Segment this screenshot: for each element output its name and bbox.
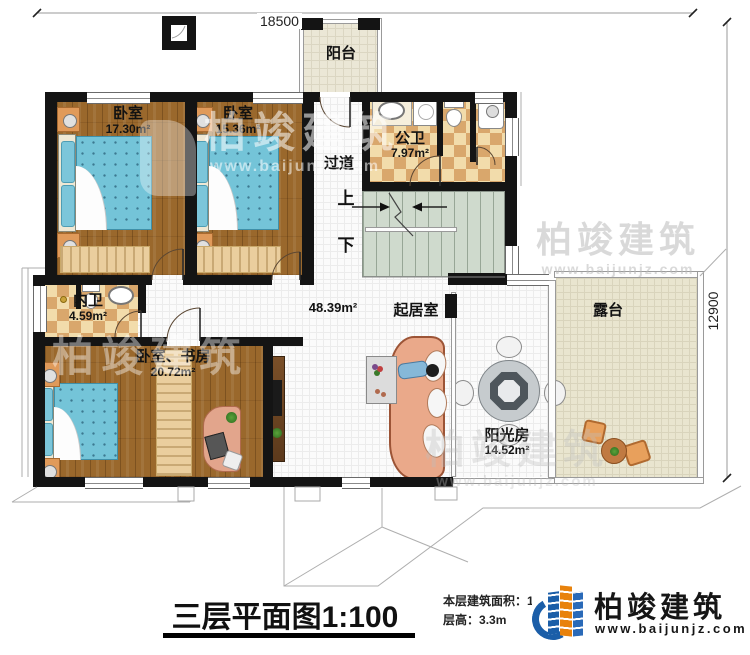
- sofa-cushion: [427, 388, 447, 418]
- window: [87, 92, 150, 104]
- wall: [300, 275, 314, 285]
- door-knob: [60, 296, 67, 303]
- floor-plan-page: 18500 12900 阳台 卧室 17.30m² 卧室 15.36m² 公卫 …: [0, 0, 750, 655]
- wall: [185, 92, 197, 285]
- bed: [191, 134, 281, 232]
- dining-chair: [496, 336, 522, 358]
- logo-building-left: [548, 591, 559, 635]
- window: [208, 477, 250, 489]
- room-area-inner-bath: 4.59m²: [69, 310, 107, 323]
- dining-table: [478, 360, 540, 422]
- bath-sink: [108, 286, 134, 305]
- room-label-bedroom-study: 卧室、书房: [135, 349, 210, 366]
- wall: [33, 337, 145, 346]
- window: [475, 92, 503, 104]
- nightstand: [57, 107, 80, 132]
- room-label-bedroom-a: 卧室: [113, 106, 143, 123]
- plan-title: 三层平面图1:100: [150, 592, 420, 636]
- rug: [60, 246, 150, 273]
- stair-handrail: [365, 227, 457, 232]
- table-cup: [375, 389, 380, 394]
- wall: [445, 294, 457, 318]
- chimney: [162, 16, 196, 50]
- dimension-right: 12900: [705, 283, 721, 339]
- room-area-bedroom-b: 15.36m²: [216, 123, 261, 136]
- dimension-top: 18500: [257, 13, 302, 29]
- room-label-inner-bath: 内卫: [73, 293, 103, 310]
- window: [505, 246, 519, 274]
- room-area-sunroom: 14.52m²: [485, 444, 530, 457]
- wall: [505, 191, 517, 246]
- person-head: [426, 364, 439, 377]
- wall: [370, 477, 453, 487]
- room-label-corridor: 过道: [324, 156, 354, 173]
- window: [253, 92, 303, 104]
- wall: [358, 18, 380, 30]
- window: [505, 118, 519, 156]
- room-label-terrace: 露台: [593, 303, 623, 320]
- balcony-railing: [321, 19, 359, 24]
- brand-website: www.baijunjz.com: [595, 621, 747, 636]
- sunroom-glass-wall: [548, 280, 556, 478]
- wall: [200, 337, 303, 346]
- window: [342, 477, 370, 489]
- wall: [362, 97, 370, 187]
- wall: [45, 92, 57, 285]
- room-area-bedroom-study: 20.72m²: [151, 366, 196, 379]
- wall: [301, 18, 323, 30]
- bath-sink: [378, 101, 405, 120]
- wall: [45, 275, 152, 285]
- room-area-living: 48.39m²: [309, 301, 357, 315]
- terrace-railing: [554, 477, 704, 484]
- room-label-bedroom-b: 卧室: [223, 106, 253, 123]
- wall: [250, 477, 342, 487]
- brand-logo: 柏竣建筑 www.baijunjz.com: [532, 574, 744, 646]
- room-area-public-bath: 7.97m²: [391, 147, 429, 160]
- desk-plant: [226, 412, 237, 423]
- wall: [302, 92, 314, 285]
- wall: [183, 275, 272, 285]
- window: [85, 477, 143, 489]
- terrace-railing: [697, 271, 704, 484]
- watermark: 柏竣建筑 www.baijunjz.com: [536, 222, 700, 276]
- table-flowers: [372, 364, 378, 370]
- wall: [437, 92, 443, 156]
- logo-building-center: [560, 585, 572, 636]
- bed: [38, 383, 118, 460]
- terrace-chair: [581, 419, 607, 445]
- logo-building-right: [573, 591, 583, 636]
- rug: [193, 246, 281, 273]
- wall: [138, 285, 146, 313]
- wall: [143, 477, 208, 487]
- cabinet-plant: [272, 428, 282, 438]
- tv: [273, 380, 282, 416]
- wall: [362, 182, 517, 191]
- stairs-floor: [362, 191, 505, 277]
- wall: [45, 92, 87, 102]
- brand-name: 柏竣建筑: [594, 584, 726, 626]
- wall: [33, 477, 85, 487]
- sunroom-glass-wall: [453, 478, 555, 484]
- toilet: [82, 284, 100, 292]
- wall: [150, 92, 253, 102]
- room-label-living: 起居室: [393, 303, 438, 320]
- coffee-table: [366, 356, 397, 404]
- bed: [58, 134, 154, 232]
- sunroom-glass-wall: [451, 292, 456, 477]
- stairs-up-label: 上: [338, 190, 355, 209]
- brand-logo-icon: [532, 576, 590, 644]
- terrace-table: [601, 438, 627, 464]
- stairs-down-label: 下: [338, 237, 355, 256]
- window: [507, 274, 549, 286]
- wall: [448, 273, 507, 285]
- title-underline: [163, 633, 415, 638]
- room-area-bedroom-a: 17.30m²: [106, 123, 151, 136]
- terrace-railing: [554, 271, 703, 278]
- window: [33, 286, 47, 332]
- wall: [263, 337, 273, 487]
- wall: [145, 337, 167, 346]
- room-label-balcony: 阳台: [326, 46, 356, 63]
